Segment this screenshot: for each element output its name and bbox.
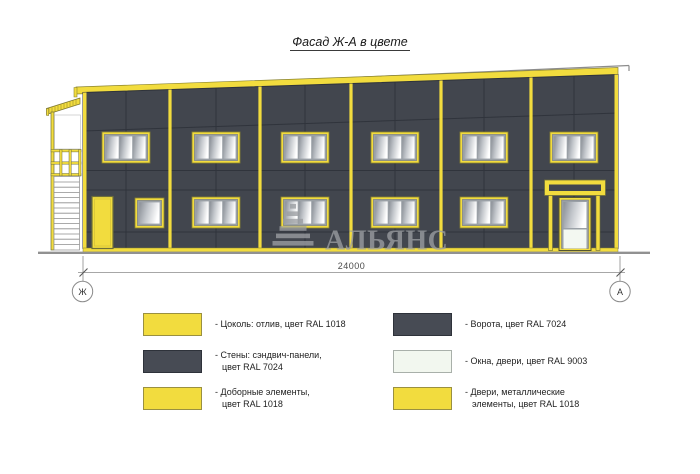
legend-label: - Доборные элементы,цвет RAL 1018 bbox=[215, 387, 310, 410]
legend-label: - Окна, двери, цвет RAL 9003 bbox=[465, 356, 587, 368]
legend-swatch bbox=[143, 350, 202, 373]
legend-item-plinth: - Цоколь: отлив, цвет RAL 1018 bbox=[143, 313, 346, 336]
legend-label: - Ворота, цвет RAL 7024 bbox=[465, 319, 566, 331]
legend: - Цоколь: отлив, цвет RAL 1018 - Стены: … bbox=[0, 0, 700, 474]
legend-swatch bbox=[393, 387, 452, 410]
legend-swatch bbox=[393, 350, 452, 373]
legend-swatch bbox=[393, 313, 452, 336]
legend-item-gates: - Ворота, цвет RAL 7024 bbox=[393, 313, 566, 336]
legend-item-walls: - Стены: сэндвич-панели,цвет RAL 7024 bbox=[143, 350, 322, 373]
legend-swatch bbox=[143, 387, 202, 410]
legend-item-trim: - Доборные элементы,цвет RAL 1018 bbox=[143, 387, 310, 410]
legend-swatch bbox=[143, 313, 202, 336]
legend-item-doors: - Двери, металлическиеэлементы, цвет RAL… bbox=[393, 387, 579, 410]
legend-item-windows: - Окна, двери, цвет RAL 9003 bbox=[393, 350, 587, 373]
legend-label: - Двери, металлическиеэлементы, цвет RAL… bbox=[465, 387, 579, 410]
legend-label: - Стены: сэндвич-панели,цвет RAL 7024 bbox=[215, 350, 322, 373]
legend-label: - Цоколь: отлив, цвет RAL 1018 bbox=[215, 319, 346, 331]
